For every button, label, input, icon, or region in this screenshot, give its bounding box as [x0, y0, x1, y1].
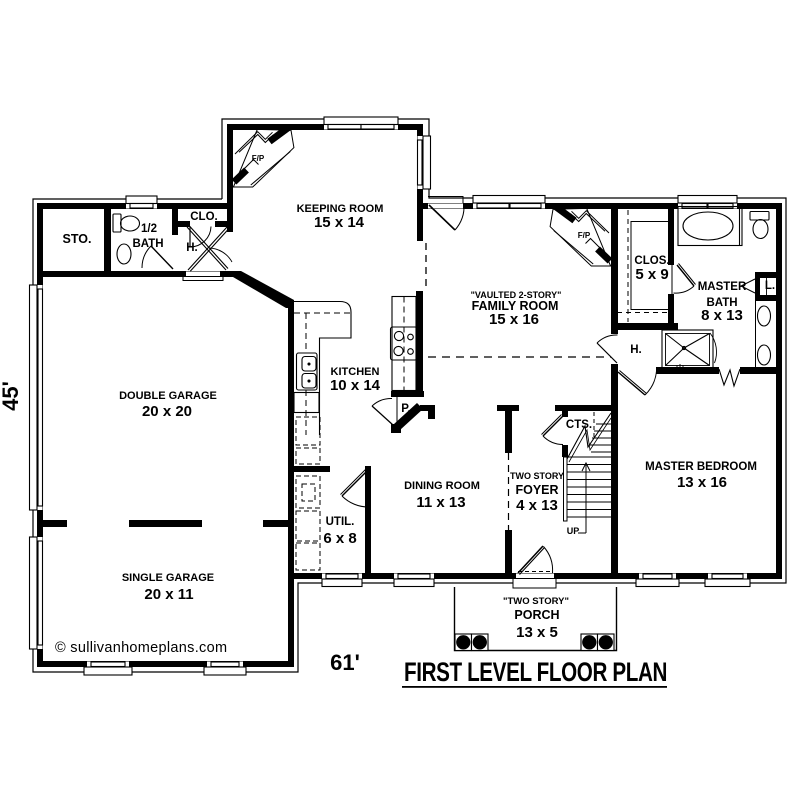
svg-text:11 x 13: 11 x 13 — [416, 494, 465, 511]
svg-text:FIRST LEVEL FLOOR PLAN: FIRST LEVEL FLOOR PLAN — [404, 657, 667, 687]
svg-text:UP: UP — [567, 526, 580, 536]
svg-text:13 x 5: 13 x 5 — [516, 624, 558, 641]
svg-text:6 x 8: 6 x 8 — [323, 530, 356, 547]
svg-text:H.: H. — [630, 344, 642, 356]
svg-text:F/P: F/P — [578, 231, 591, 240]
svg-text:DINING ROOM: DINING ROOM — [404, 480, 480, 492]
svg-text:MASTER: MASTER — [698, 281, 747, 293]
svg-text:P.: P. — [401, 403, 410, 415]
svg-text:4 x 13: 4 x 13 — [516, 497, 558, 514]
svg-text:8 x 13: 8 x 13 — [701, 307, 743, 324]
svg-text:F/P: F/P — [252, 154, 265, 163]
svg-text:"TWO STORY": "TWO STORY" — [503, 596, 569, 607]
svg-text:45': 45' — [0, 381, 23, 411]
svg-text:© sullivanhomeplans.com: © sullivanhomeplans.com — [55, 640, 227, 656]
svg-text:20 x 20: 20 x 20 — [142, 403, 192, 420]
svg-text:1/2: 1/2 — [141, 223, 157, 235]
svg-text:MASTER BEDROOM: MASTER BEDROOM — [645, 461, 757, 473]
svg-text:CTS.: CTS. — [566, 419, 592, 431]
svg-text:20 x 11: 20 x 11 — [144, 586, 193, 603]
svg-text:DOUBLE GARAGE: DOUBLE GARAGE — [119, 390, 217, 402]
svg-text:5 x 9: 5 x 9 — [635, 266, 668, 283]
svg-text:PORCH: PORCH — [514, 608, 559, 622]
svg-text:15 x 14: 15 x 14 — [314, 214, 365, 231]
svg-text:L.: L. — [765, 280, 775, 292]
svg-text:13 x 16: 13 x 16 — [677, 474, 727, 491]
svg-text:TWO STORY: TWO STORY — [510, 471, 564, 481]
svg-text:61': 61' — [330, 650, 360, 675]
svg-text:BATH: BATH — [132, 238, 163, 250]
svg-text:CLO.: CLO. — [190, 211, 217, 223]
svg-text:UTIL.: UTIL. — [326, 516, 355, 528]
svg-text:STO.: STO. — [63, 232, 92, 246]
svg-text:H.: H. — [186, 242, 198, 254]
svg-text:FOYER: FOYER — [515, 483, 558, 497]
svg-text:SINGLE GARAGE: SINGLE GARAGE — [122, 572, 214, 584]
svg-text:15 x 16: 15 x 16 — [489, 311, 539, 328]
svg-text:10 x 14: 10 x 14 — [330, 377, 381, 394]
